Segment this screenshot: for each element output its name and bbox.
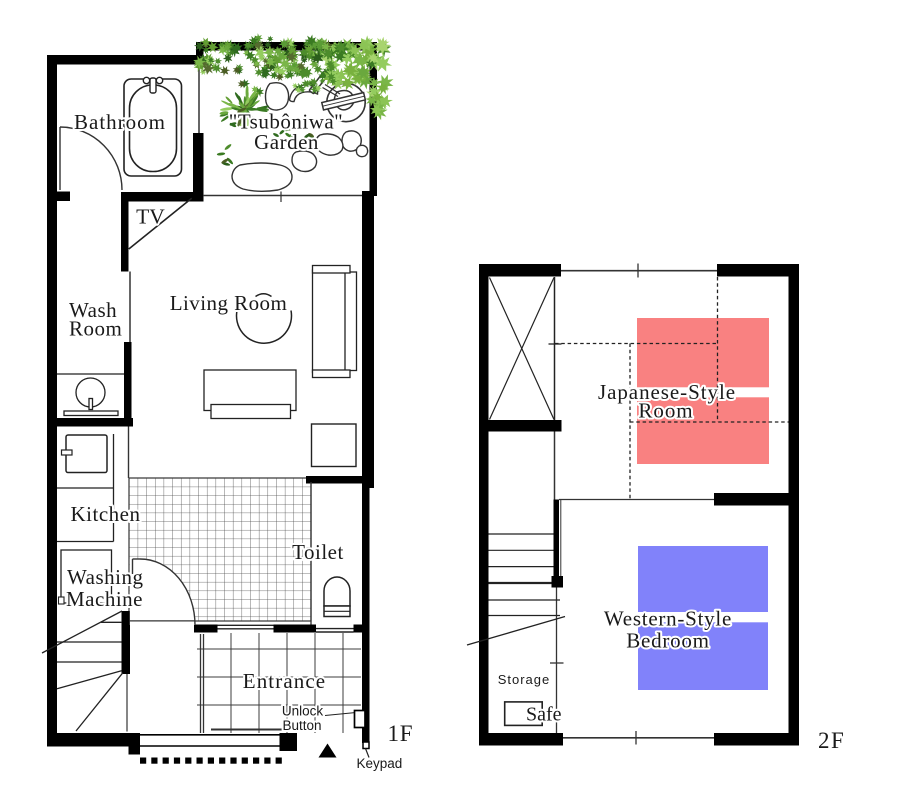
svg-text:Keypad: Keypad <box>357 756 403 771</box>
svg-text:Storage: Storage <box>498 672 551 687</box>
svg-text:Machine: Machine <box>66 587 143 611</box>
svg-text:Entrance: Entrance <box>243 669 326 693</box>
svg-text:2F: 2F <box>818 728 845 753</box>
svg-text:Button: Button <box>282 718 321 733</box>
svg-text:Garden: Garden <box>254 130 319 154</box>
svg-text:Western-Style: Western-Style <box>604 607 732 631</box>
svg-text:Kitchen: Kitchen <box>71 502 141 526</box>
svg-text:Bathroom: Bathroom <box>74 110 166 134</box>
svg-text:Unlock: Unlock <box>282 704 324 719</box>
svg-text:Toilet: Toilet <box>292 540 344 564</box>
svg-text:Washing: Washing <box>67 565 143 589</box>
svg-text:Living Room: Living Room <box>170 291 288 315</box>
svg-text:Room: Room <box>638 399 693 423</box>
svg-text:Bedroom: Bedroom <box>626 629 709 653</box>
svg-text:1F: 1F <box>388 721 414 746</box>
svg-text:TV: TV <box>136 205 165 229</box>
svg-text:Room: Room <box>69 317 122 341</box>
svg-text:Safe: Safe <box>526 704 562 726</box>
